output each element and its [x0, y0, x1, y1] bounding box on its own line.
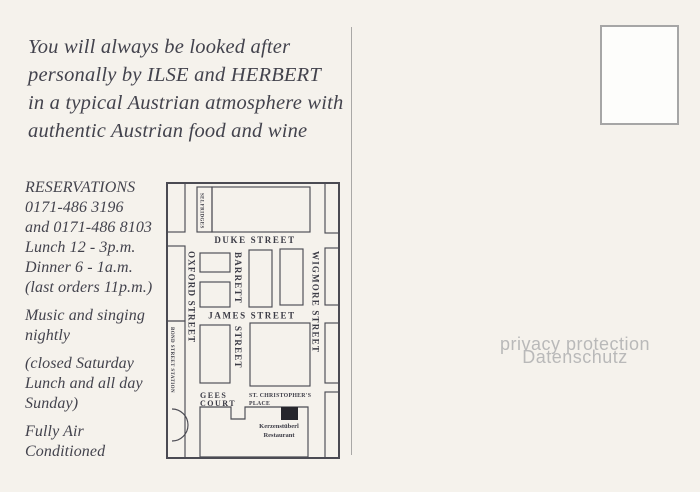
- intro-line: personally by ILSE and HERBERT: [28, 61, 343, 89]
- privacy-watermark: privacy protection Datenschutz: [455, 338, 695, 364]
- closed-line: Lunch and all day: [25, 374, 152, 394]
- intro-line: authentic Austrian food and wine: [28, 117, 343, 145]
- address-divider-line: [351, 27, 352, 455]
- map-block: [249, 250, 272, 307]
- map-block: [167, 246, 185, 321]
- details-column: RESERVATIONS 0171-486 3196 and 0171-486 …: [25, 178, 152, 470]
- map-block: [200, 282, 230, 307]
- st-christophers-label-2: PLACE: [249, 401, 270, 407]
- barrett-street-label: BARRETT: [233, 252, 243, 304]
- oxford-street-label: OXFORD STREET: [187, 251, 197, 343]
- map-block: [212, 187, 310, 232]
- phone-number: 0171-486 3196: [25, 198, 152, 218]
- map-block: [280, 249, 303, 305]
- map-block: [325, 183, 339, 233]
- reservations-title: RESERVATIONS: [25, 178, 152, 198]
- restaurant-label-2: Restaurant: [263, 432, 295, 439]
- map-block: [325, 392, 339, 458]
- lunch-hours: Lunch 12 - 3p.m.: [25, 238, 152, 258]
- james-street-label: JAMES STREET: [208, 311, 295, 321]
- st-christophers-label-1: ST. CHRISTOPHER'S: [249, 393, 311, 399]
- closed-block: (closed Saturday Lunch and all day Sunda…: [25, 354, 152, 414]
- map-block: [200, 325, 230, 383]
- map-block: [250, 323, 310, 386]
- music-line: Music and singing: [25, 306, 152, 326]
- gees-court-label-2: COURT: [200, 399, 236, 408]
- stamp-box: [600, 25, 679, 125]
- barrett-street-cont-label: STREET: [233, 326, 243, 369]
- last-orders: (last orders 11p.m.): [25, 278, 152, 298]
- music-line: nightly: [25, 326, 152, 346]
- closed-line: Sunday): [25, 394, 152, 414]
- duke-street-label: DUKE STREET: [214, 235, 295, 245]
- restaurant-marker: [281, 407, 298, 420]
- phone-number: and 0171-486 8103: [25, 218, 152, 238]
- aircon-line: Conditioned: [25, 442, 152, 462]
- intro-line: You will always be looked after: [28, 33, 343, 61]
- dinner-hours: Dinner 6 - 1a.m.: [25, 258, 152, 278]
- watermark-line-2: Datenschutz: [455, 351, 695, 364]
- postcard-back: You will always be looked after personal…: [0, 0, 700, 492]
- map-block: [325, 323, 339, 383]
- wigmore-street-label: WIGMORE STREET: [311, 251, 321, 353]
- music-block: Music and singing nightly: [25, 306, 152, 346]
- closed-line: (closed Saturday: [25, 354, 152, 374]
- restaurant-label-1: Kerzenstüberl: [259, 423, 299, 430]
- bond-station-label: BOND STREET STATION: [169, 327, 174, 393]
- intro-line: in a typical Austrian atmosphere with: [28, 89, 343, 117]
- map-block: [167, 183, 185, 232]
- intro-text: You will always be looked after personal…: [28, 33, 343, 145]
- selfridges-label: SELFRIDGES: [199, 193, 204, 229]
- street-map: DUKE STREET JAMES STREET OXFORD STREET B…: [162, 180, 342, 461]
- aircon-block: Fully Air Conditioned: [25, 422, 152, 462]
- aircon-line: Fully Air: [25, 422, 152, 442]
- bond-station-arc: [172, 409, 188, 441]
- map-block: [200, 253, 230, 272]
- map-block: [325, 248, 339, 305]
- reservations-block: RESERVATIONS 0171-486 3196 and 0171-486 …: [25, 178, 152, 298]
